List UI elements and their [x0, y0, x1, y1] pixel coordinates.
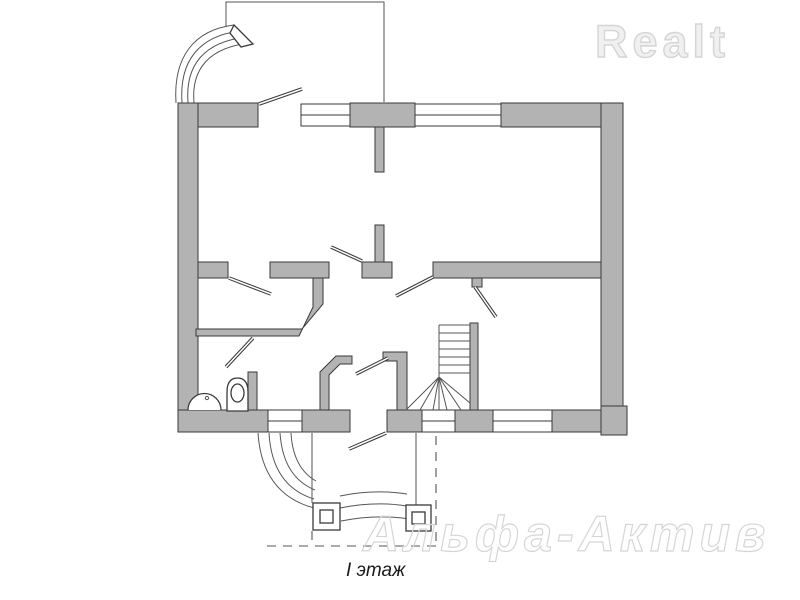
porch-column-left	[313, 503, 340, 530]
floor-label: I этаж	[346, 560, 405, 582]
step-arrow-tip	[230, 25, 253, 47]
staircase	[406, 325, 470, 410]
watermark-text: Альфа-Актив	[363, 505, 800, 563]
realt-logo: Realt	[595, 16, 800, 68]
entrance-steps-top	[176, 25, 253, 103]
interior-walls	[196, 127, 601, 410]
floor-plan-page: Realt Альфа-Актив I этаж	[0, 0, 800, 600]
terrace-outline	[226, 2, 384, 102]
bathroom-partition	[196, 278, 323, 336]
vestibule-wall	[320, 356, 352, 410]
